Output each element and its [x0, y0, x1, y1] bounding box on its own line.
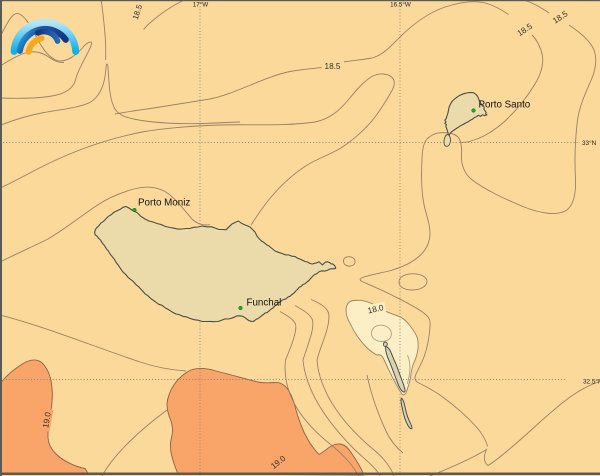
svg-text:32.5°N: 32.5°N — [583, 378, 600, 386]
svg-text:Funchal: Funchal — [247, 298, 282, 309]
svg-text:18.5: 18.5 — [325, 62, 341, 71]
svg-text:Porto Moniz: Porto Moniz — [138, 198, 190, 209]
svg-text:Porto Santo: Porto Santo — [479, 100, 531, 111]
svg-text:16.5°W: 16.5°W — [390, 1, 411, 9]
svg-text:17°W: 17°W — [193, 1, 209, 9]
svg-text:33°N: 33°N — [582, 139, 597, 147]
